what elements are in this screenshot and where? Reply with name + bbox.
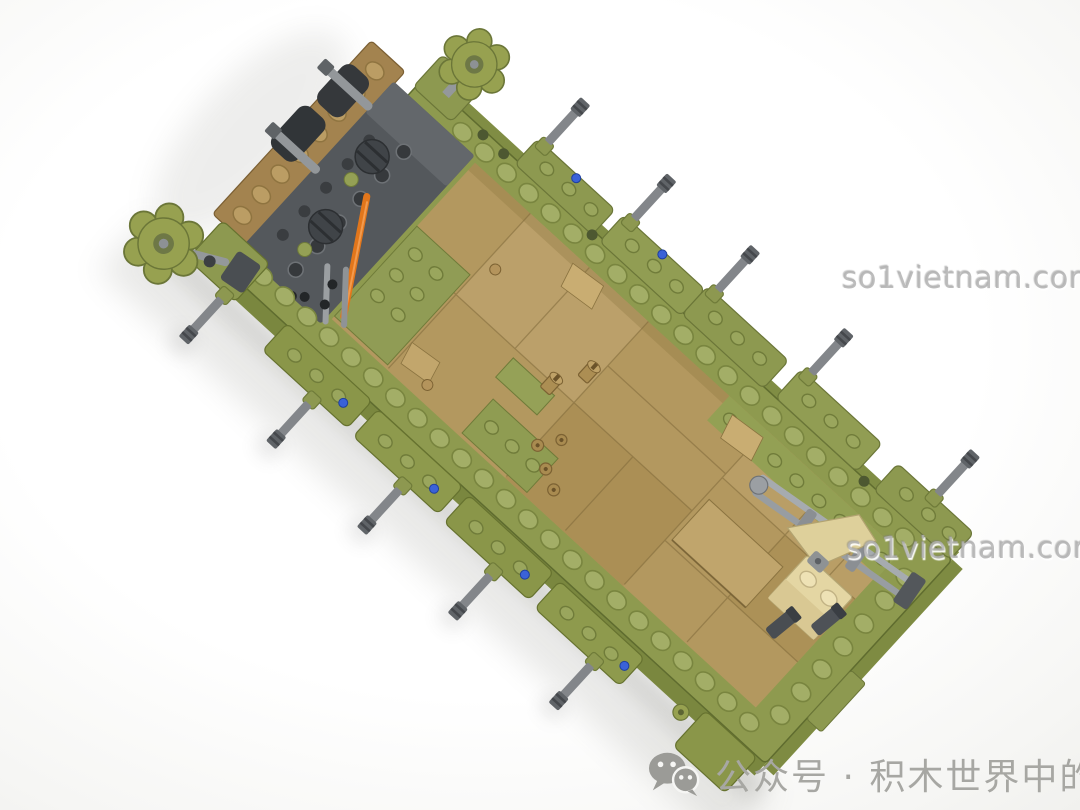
caption: 公众号 · 积木世界中的CK [648, 748, 1080, 800]
lego-chassis-photo [0, 0, 1080, 810]
axle-pin [924, 448, 981, 508]
wechat-icon [648, 750, 702, 798]
axle-pin [704, 244, 761, 304]
axle-pin [534, 96, 591, 156]
watermark-1: so1vietnam.com [842, 261, 1080, 296]
photo-stage: so1vietnam.com so1vietnam.com 公众号 · 积木世界… [0, 0, 1080, 810]
axle-pin [798, 327, 855, 387]
axle-pin [620, 172, 677, 232]
watermark-2: so1vietnam.com [846, 531, 1080, 566]
caption-text: 公众号 · 积木世界中的CK [715, 748, 1080, 800]
